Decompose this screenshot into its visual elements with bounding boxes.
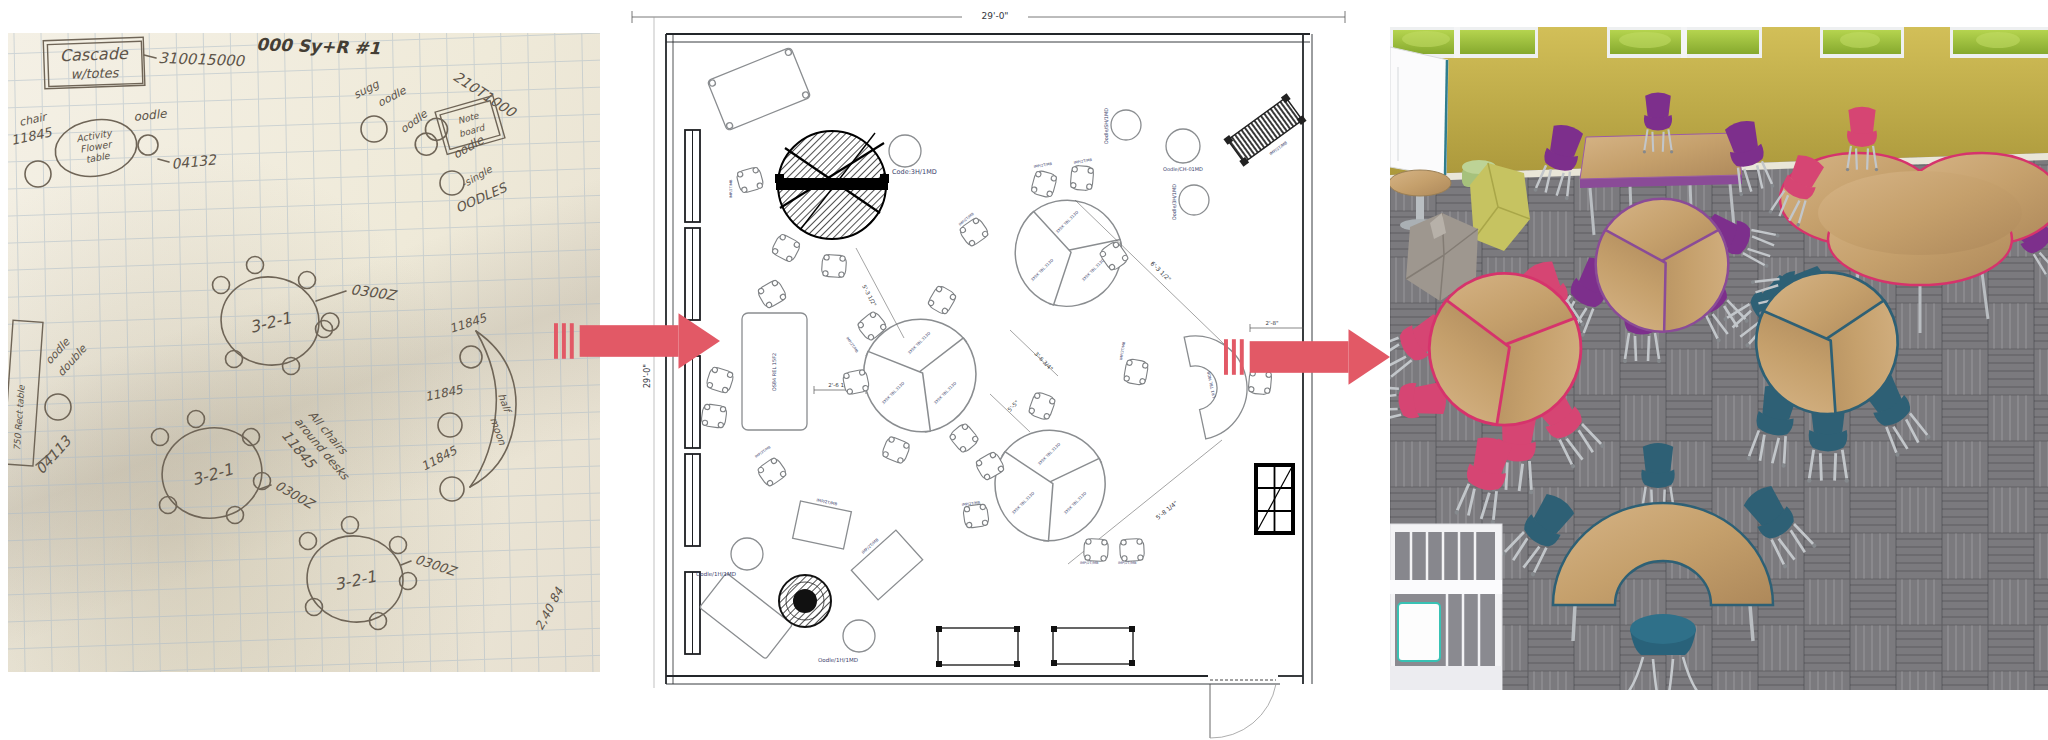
label-oodle-1h1md: Oodle/1H/1MD <box>696 571 736 577</box>
note-board-plan: IMP/2T/MB <box>1223 93 1311 173</box>
rotated-desk-1: IMP/2T/MB <box>793 494 853 549</box>
label-code-3h1md: Code:3H/1MD <box>892 168 937 176</box>
dim-d1: 5'-3 1/2" <box>861 284 877 308</box>
cubby-shelving <box>1390 524 1502 690</box>
flower-table-sketch: Activity Flower table <box>51 113 141 182</box>
hatched-round-table <box>775 131 889 239</box>
dim-d6: 2'-8" <box>1265 320 1278 326</box>
oodle-circle <box>1179 185 1209 215</box>
sketch-heading: 000 Sy+R #1 <box>256 34 381 58</box>
label-oodle-3h1md: Oodle/3H/1MD <box>1171 184 1177 220</box>
rect-table: OS84 REL 15F2 <box>742 313 807 430</box>
dim-d5: 6'-3 1/2" <box>1149 260 1173 283</box>
render-scene <box>1390 27 2048 690</box>
rect-table-sketch: 750 Rect table <box>8 320 43 466</box>
arrow-glyph <box>1224 329 1390 384</box>
small-hatched-circle <box>779 575 831 627</box>
chair-tag: IMP/2T/MB <box>1033 162 1052 169</box>
window-group <box>1820 27 1904 58</box>
oodle-circle <box>731 538 763 570</box>
chair-code-1: 11845 <box>10 125 54 148</box>
code-310015000: 310015000 <box>158 49 246 70</box>
oodle-circle <box>1166 129 1200 163</box>
chair-code-3: 11845 <box>448 310 490 336</box>
grid-cabinet <box>1256 465 1293 533</box>
rotated-desk-2: IMP/2T/MB <box>846 524 923 600</box>
door-swing <box>1210 684 1276 738</box>
whiteboard-partition <box>1390 47 1448 182</box>
chair-tag: IMP/2T/MB <box>1073 158 1092 165</box>
oodle-circle <box>843 620 875 652</box>
window-group <box>1950 27 2048 58</box>
chair-tag: IMP/2T/MB <box>1080 561 1099 565</box>
rect-table-note: 750 Rect table <box>12 384 27 452</box>
top-left-table <box>707 47 811 131</box>
code-0300z-1: 0300Z <box>350 281 399 303</box>
process-arrow-1 <box>554 311 722 371</box>
dim-d3: 3'-6 3/4" <box>1033 351 1054 372</box>
dim-d4: 5'-5" <box>1006 399 1019 413</box>
rect-table-tag: OS84 REL 15F2 <box>771 353 777 392</box>
process-arrow-2 <box>1224 327 1392 387</box>
table-3-label: 3-2-1 <box>333 567 378 594</box>
teal-machine <box>1398 603 1440 661</box>
label-oodle-sh1md: Oodle/SH/1MD <box>1103 108 1109 144</box>
sketch-photo-panel: Cascade w/totes 310015000 000 Sy+R #1 21… <box>8 33 600 672</box>
chair-tag: IMP/2T/MB <box>729 179 733 198</box>
cascade-label-1: Cascade <box>60 44 130 65</box>
all-chairs-note: All chairs around desks 11845 <box>277 405 364 496</box>
chair-tag: IMP/2T/MB <box>1118 561 1137 565</box>
chair-tag: IMP/2T/MB <box>845 336 859 354</box>
label-oodle-ch01md: Oodle/CH-01MD <box>1163 166 1203 172</box>
arrow-glyph <box>554 313 720 368</box>
dim-width: 29'-0" <box>981 11 1008 21</box>
chair-tag: IMP/2T/MB <box>1119 341 1126 360</box>
label-oodle-1h1md: Oodle/1H/1MD <box>818 657 858 663</box>
bottom-left-table <box>699 573 792 659</box>
sketch-table-1: 3-2-1 0300Z <box>213 257 399 375</box>
dim-d7: 5'-8 1/4" <box>1154 499 1179 521</box>
code-210t1000: 210T1000 <box>450 68 519 121</box>
bottom-table-1 <box>936 626 1020 667</box>
code-04132: 04132 <box>171 151 218 172</box>
window-group <box>1607 27 1762 58</box>
half-moon-word-1: half <box>496 392 514 416</box>
oodle-circle <box>1111 110 1141 140</box>
chair-code-5: 11845 <box>419 443 460 474</box>
half-moon-sketch: half moon 11845 11845 11845 <box>419 310 516 501</box>
corner-note: 2,40 84 <box>532 585 566 632</box>
table-1-label: 3-2-1 <box>248 308 293 337</box>
table-2-label: 3-2-1 <box>190 460 236 490</box>
oodle-note-1: oodle <box>375 83 409 109</box>
cascade-label-2: w/totes <box>70 65 120 82</box>
bottom-table-2 <box>1051 626 1135 666</box>
code-0300z-3: 0300Z <box>413 552 460 580</box>
cascade-box: Cascade w/totes <box>43 37 145 88</box>
sketch-table-3: 3-2-1 0300Z <box>300 517 460 630</box>
chair-code-4: 11845 <box>424 382 466 404</box>
design-process-composite: Cascade w/totes 310015000 000 Sy+R #1 21… <box>0 0 2048 740</box>
render-panel <box>1390 27 2048 690</box>
code-0300z-2: 0300Z <box>273 478 319 513</box>
sketch-drawing: Cascade w/totes 310015000 000 Sy+R #1 21… <box>8 33 600 672</box>
sketch-table-2: 3-2-1 0300Z <box>152 411 319 526</box>
code-04113: 04113 <box>32 432 74 477</box>
chair-tag: IMP/2T/MB <box>754 445 772 459</box>
oodle-note-4: oodle <box>133 106 169 124</box>
pouf-circle <box>889 135 921 167</box>
